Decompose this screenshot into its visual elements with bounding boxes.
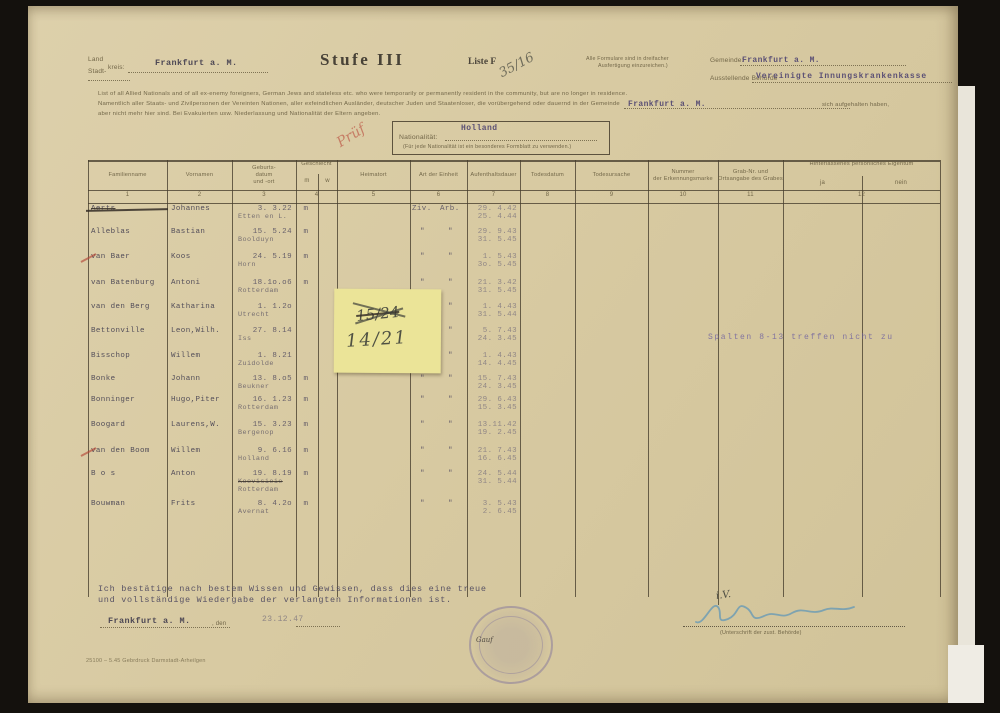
table-header-sub-ja: ja: [783, 180, 862, 186]
table-colnum-10: 10: [648, 192, 718, 198]
birthdate-cell: 16. 1.23: [234, 396, 292, 404]
table-header-10: Nummer der Erkennungsmarke: [648, 161, 718, 190]
table-vline: [318, 174, 319, 597]
stay-to-cell: 14. 4.45: [467, 360, 517, 368]
stay-from-cell: 5. 7.43: [467, 327, 517, 335]
birthplace-cell: Horn: [238, 261, 256, 269]
table-header-4: Geschlecht: [296, 161, 337, 177]
birthdate-cell: 13. 8.o5: [234, 375, 292, 383]
signature-ink: [690, 594, 860, 630]
sex-cell: m: [296, 279, 316, 287]
stay-to-cell: 3o. 5.45: [467, 261, 517, 269]
scan-paper-edge: [958, 86, 975, 703]
den-label: , den: [212, 621, 226, 627]
table-colnum-11: 11: [718, 192, 783, 198]
unit-cell-right: ": [448, 447, 453, 455]
table-header-12: Hinterlassenes persönliches Eigentum: [783, 161, 940, 177]
unit-cell-left: ": [420, 253, 425, 261]
sex-cell: m: [296, 253, 316, 261]
stay-from-cell: 24. 5.44: [467, 470, 517, 478]
stay-from-cell: 21. 3.42: [467, 279, 517, 287]
birthdate-cell: 3. 3.22: [234, 205, 292, 213]
unit-cell-right: ": [448, 375, 453, 383]
stay-from-cell: 1. 5.43: [467, 253, 517, 261]
table-colnum-8: 8: [520, 192, 575, 198]
unit-cell-left: ": [420, 447, 425, 455]
table-colnum-3: 3: [232, 192, 296, 198]
place-value: Frankfurt a. M.: [108, 616, 191, 626]
sticky-note: 15/24 14/21: [334, 289, 442, 374]
firstname-cell: Hugo,Piter: [171, 396, 233, 404]
table-header-1: Familienname: [88, 161, 167, 190]
place-dotted-line: [100, 627, 230, 628]
stamp-handwritten-word: Gauf: [476, 636, 493, 644]
table-header-5: Heimatort: [337, 161, 410, 190]
birthplace-cell: Etten en L.: [238, 213, 287, 221]
firstname-cell: Leon,Wilh.: [171, 327, 233, 335]
stay-from-cell: 15. 7.43: [467, 375, 517, 383]
sex-cell: m: [296, 375, 316, 383]
unit-cell-right: ": [448, 253, 453, 261]
surname-cell: Bonninger: [91, 396, 169, 404]
scan-paper-corner: [948, 645, 984, 703]
print-code: 25100 – 5.45 Gebrdruck Darmstadt-Arheilg…: [86, 658, 206, 664]
unit-cell-right: ": [448, 228, 453, 236]
birthdate-cell: 15. 5.24: [234, 228, 292, 236]
surname-cell: B o s: [91, 470, 169, 478]
unit-cell-right: Arb.: [440, 205, 460, 213]
unit-cell-left: Ziv.: [412, 205, 432, 213]
table-header-8: Todesdatum: [520, 161, 575, 190]
unit-cell-left: ": [420, 228, 425, 236]
table-header-6: Art der Einheit: [410, 161, 467, 190]
stay-to-cell: 15. 3.45: [467, 404, 517, 412]
table-colnum-5: 5: [337, 192, 410, 198]
sex-cell: m: [296, 205, 316, 213]
table-header-sub-m: m: [296, 178, 318, 184]
birthplace-cell: Bergenop: [238, 429, 274, 437]
table-colnum-7: 7: [467, 192, 520, 198]
table-vline: [88, 160, 89, 597]
birthplace-cell: Boolduyn: [238, 236, 274, 244]
sex-cell: m: [296, 500, 316, 508]
stay-from-cell: 29. 4.42: [467, 205, 517, 213]
certification-line2: und vollständige Wiedergabe der verlangt…: [98, 595, 452, 605]
surname-cell: Alleblas: [91, 228, 169, 236]
surname-cell: Bettonville: [91, 327, 169, 335]
birthdate-cell: 1. 1.2o: [234, 303, 292, 311]
round-ink-stamp: [469, 606, 553, 684]
stay-from-cell: 1. 4.43: [467, 303, 517, 311]
stay-to-cell: 16. 6.45: [467, 455, 517, 463]
birthplace-cell: Holland: [238, 455, 269, 463]
table-vline: [783, 160, 784, 597]
date-value: 23.12.47: [262, 615, 304, 624]
table-header-9: Todesursache: [575, 161, 648, 190]
birthplace-cell: Utrecht: [238, 311, 269, 319]
unit-cell-left: ": [420, 421, 425, 429]
table-vline: [940, 160, 941, 597]
birthdate-cell: 19. 8.19: [234, 470, 292, 478]
table-colnum-9: 9: [575, 192, 648, 198]
signature-dotted-line: [683, 626, 905, 627]
unit-cell-right: ": [448, 396, 453, 404]
sex-cell: m: [296, 447, 316, 455]
unit-cell-right: ": [448, 327, 453, 335]
table-header-2: Vornamen: [167, 161, 232, 190]
stay-from-cell: 1. 4.43: [467, 352, 517, 360]
birthplace-cell: Avernat: [238, 508, 269, 516]
birthplace-cell: Zuidolde: [238, 360, 274, 368]
birthplace-struck-cell: Koevisieie: [238, 478, 283, 486]
scanned-document: Land Stadt- kreis: Frankfurt a. M. Stufe…: [0, 0, 1000, 713]
surname-cell: van Baer: [91, 253, 169, 261]
birthdate-cell: 8. 4.2o: [234, 500, 292, 508]
table-colnum-4: 4: [296, 192, 337, 198]
unit-cell-right: ": [448, 303, 453, 311]
sticky-note-line2: 14/21: [345, 327, 408, 352]
stay-to-cell: 31. 5.44: [467, 311, 517, 319]
unit-cell-right: ": [448, 470, 453, 478]
firstname-cell: Anton: [171, 470, 233, 478]
firstname-cell: Katharina: [171, 303, 233, 311]
firstname-cell: Antoni: [171, 279, 233, 287]
table-vline: [575, 160, 576, 597]
unit-cell-left: ": [420, 470, 425, 478]
stay-to-cell: 25. 4.44: [467, 213, 517, 221]
table-header-sub-w: w: [318, 178, 337, 184]
certification-line1: Ich bestätige nach bestem Wissen und Gew…: [98, 584, 487, 594]
birthplace-cell: Rotterdam: [238, 486, 278, 494]
table-header-11: Grab-Nr. und Ortsangabe des Grabes: [718, 161, 783, 190]
table-header-3: Geburts- datum und -ort: [232, 161, 296, 190]
stay-to-cell: 31. 5.45: [467, 287, 517, 295]
unit-cell-right: ": [448, 352, 453, 360]
table-colnum-12: 12: [783, 192, 940, 198]
firstname-cell: Koos: [171, 253, 233, 261]
surname-cell: Bisschop: [91, 352, 169, 360]
stay-to-cell: 31. 5.45: [467, 236, 517, 244]
firstname-cell: Johannes: [171, 205, 233, 213]
stay-to-cell: 19. 2.45: [467, 429, 517, 437]
birthplace-cell: Rotterdam: [238, 287, 278, 295]
table-header-7: Aufenthaltsdauer: [467, 161, 520, 190]
stay-from-cell: 29. 9.43: [467, 228, 517, 236]
unit-cell-left: ": [420, 375, 425, 383]
table-vline: [410, 160, 411, 597]
table-vline: [718, 160, 719, 605]
sex-cell: m: [296, 470, 316, 478]
table-colnum-1: 1: [88, 192, 167, 198]
table-vline: [337, 160, 338, 597]
firstname-cell: Willem: [171, 352, 233, 360]
table-colnum-2: 2: [167, 192, 232, 198]
stay-to-cell: 24. 3.45: [467, 383, 517, 391]
stay-to-cell: 31. 5.44: [467, 478, 517, 486]
sex-cell: m: [296, 228, 316, 236]
birthplace-cell: Beukner: [238, 383, 269, 391]
unit-cell-right: ": [448, 421, 453, 429]
signature-caption: (Unterschrift der zust. Behörde): [720, 630, 802, 636]
stay-from-cell: 21. 7.43: [467, 447, 517, 455]
birthdate-cell: 24. 5.19: [234, 253, 292, 261]
table-header-sub-nein: nein: [862, 180, 940, 186]
sex-cell: m: [296, 396, 316, 404]
table-vline: [862, 176, 863, 597]
surname-cell: van den Boom: [91, 447, 169, 455]
table-hline: [88, 203, 940, 204]
birthplace-cell: Iss: [238, 335, 251, 343]
birthdate-cell: 27. 8.14: [234, 327, 292, 335]
table-colnum-6: 6: [410, 192, 467, 198]
surname-cell: Boogard: [91, 421, 169, 429]
unit-cell-right: ": [448, 500, 453, 508]
stay-from-cell: 29. 6.43: [467, 396, 517, 404]
unit-cell-left: ": [420, 500, 425, 508]
stay-to-cell: 2. 6.45: [467, 508, 517, 516]
firstname-cell: Bastian: [171, 228, 233, 236]
birthdate-cell: 1. 8.21: [234, 352, 292, 360]
firstname-cell: Laurens,W.: [171, 421, 233, 429]
unit-cell-left: ": [420, 279, 425, 287]
stay-from-cell: 3. 5.43: [467, 500, 517, 508]
firstname-cell: Johann: [171, 375, 233, 383]
firstname-cell: Frits: [171, 500, 233, 508]
birthdate-cell: 18.1o.o6: [234, 279, 292, 287]
table-vline: [648, 160, 649, 597]
table-vline: [520, 160, 521, 597]
date-dotted-line: [296, 626, 340, 627]
stay-to-cell: 24. 3.45: [467, 335, 517, 343]
table-hline: [88, 190, 940, 191]
surname-cell: Bonke: [91, 375, 169, 383]
birthdate-cell: 9. 6.16: [234, 447, 292, 455]
unit-cell-right: ": [448, 279, 453, 287]
sex-cell: m: [296, 421, 316, 429]
firstname-cell: Willem: [171, 447, 233, 455]
birthdate-cell: 15. 3.23: [234, 421, 292, 429]
paper-sheet: Land Stadt- kreis: Frankfurt a. M. Stufe…: [28, 6, 958, 703]
unit-cell-left: ": [420, 396, 425, 404]
surname-cell: van Batenburg: [91, 279, 169, 287]
surname-cell: Bouwman: [91, 500, 169, 508]
surname-cell: van den Berg: [91, 303, 169, 311]
birthplace-cell: Rotterdam: [238, 404, 278, 412]
columns-not-applicable-stamp: Spalten 8-13 treffen nicht zu: [708, 333, 894, 342]
stay-from-cell: 13.11.42: [467, 421, 517, 429]
